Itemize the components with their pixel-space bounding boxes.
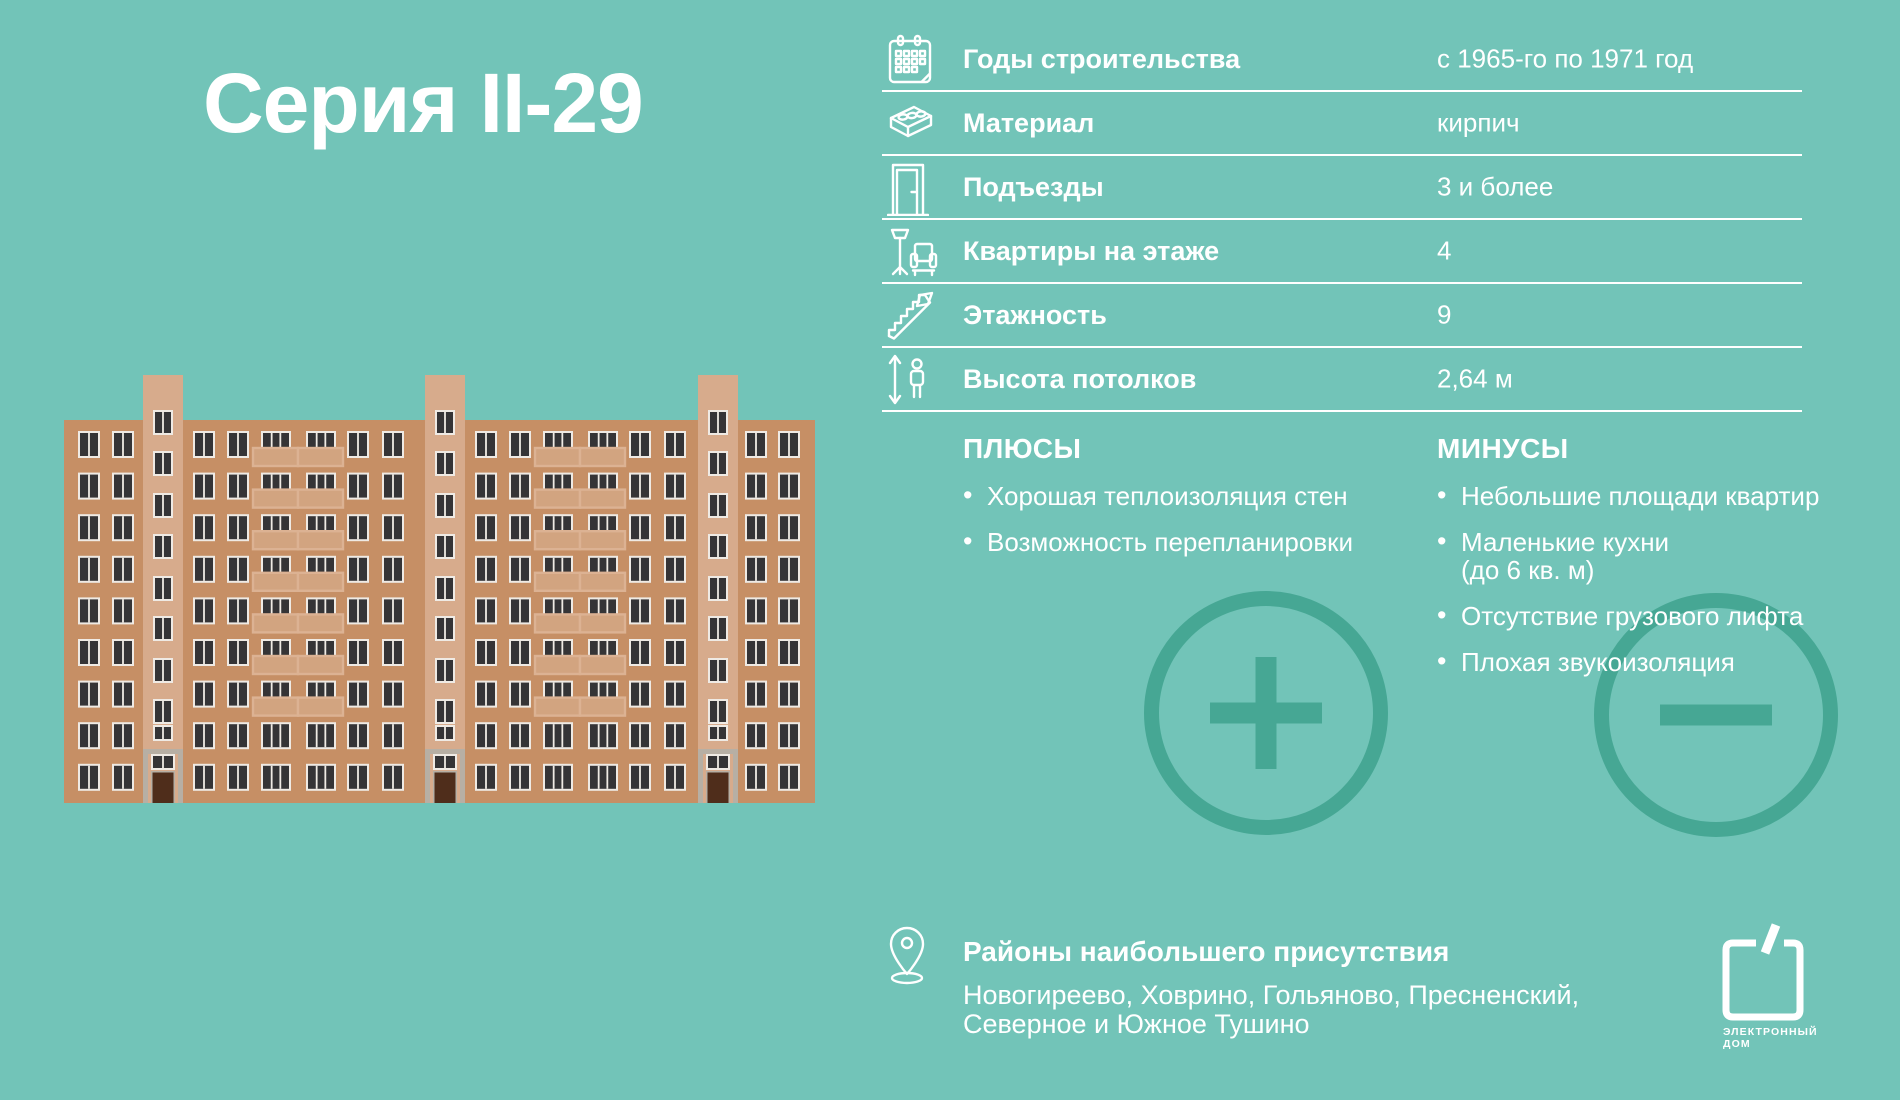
spec-label: Материал (963, 108, 1094, 139)
map-pin-icon (884, 925, 930, 987)
spec-value: кирпич (1437, 108, 1520, 139)
door-icon (882, 159, 963, 216)
spec-row-entrances: Подъезды 3 и более (882, 156, 1802, 220)
spec-value: 4 (1437, 236, 1451, 267)
spec-value: 9 (1437, 300, 1451, 331)
brick-icon (882, 104, 963, 142)
spec-row-ceiling: Высота потолков 2,64 м (882, 348, 1802, 412)
pros-list: Хорошая теплоизоляция стен Возможность п… (963, 482, 1393, 556)
stairs-icon (882, 291, 963, 340)
cons-heading: МИНУСЫ (1437, 433, 1857, 465)
districts-line: Новогиреево, Ховрино, Гольяново, Преснен… (963, 981, 1579, 1010)
calendar-icon (882, 34, 963, 85)
spec-value: 2,64 м (1437, 364, 1513, 395)
spec-label: Квартиры на этаже (963, 236, 1219, 267)
spec-label: Высота потолков (963, 364, 1196, 395)
logo-text: ЭЛЕКТРОННЫЙ ДОМ (1723, 1026, 1818, 1050)
pros-heading: ПЛЮСЫ (963, 433, 1393, 465)
page-title: Серия II-29 (203, 55, 643, 152)
spec-label: Подъезды (963, 172, 1104, 203)
spec-label: Этажность (963, 300, 1107, 331)
cons-item: Отсутствие грузового лифта (1437, 602, 1857, 630)
minus-icon (1660, 705, 1772, 726)
electronic-house-logo (1721, 922, 1805, 1022)
cons-section: МИНУСЫ Небольшие площади квартир Маленьк… (1437, 433, 1857, 694)
districts-section: Районы наибольшего присутствия Новогирее… (963, 936, 1579, 1039)
cons-list: Небольшие площади квартир Маленькие кухн… (1437, 482, 1857, 676)
pros-section: ПЛЮСЫ Хорошая теплоизоляция стен Возможн… (963, 433, 1393, 574)
height-icon (882, 351, 963, 408)
infographic-canvas: Серия II-29 Годы строительств (0, 0, 1900, 1100)
spec-value: с 1965-го по 1971 год (1437, 44, 1693, 75)
spec-row-floors: Этажность 9 (882, 284, 1802, 348)
districts-line: Северное и Южное Тушино (963, 1010, 1579, 1039)
building-illustration (64, 375, 815, 803)
spec-label: Годы строительства (963, 44, 1240, 75)
building-svg (64, 375, 815, 803)
cons-item: Маленькие кухни (до 6 кв. м) (1437, 528, 1857, 584)
plus-circle (1144, 591, 1388, 835)
pros-item: Возможность перепланировки (963, 528, 1393, 556)
spec-value: 3 и более (1437, 172, 1553, 203)
spec-row-years: Годы строительства с 1965-го по 1971 год (882, 28, 1802, 92)
pros-item: Хорошая теплоизоляция стен (963, 482, 1393, 510)
spec-table: Годы строительства с 1965-го по 1971 год… (882, 28, 1802, 412)
cons-item: Плохая звукоизоляция (1437, 648, 1857, 676)
cons-item: Небольшие площади квартир (1437, 482, 1857, 510)
spec-row-material: Материал кирпич (882, 92, 1802, 156)
spec-row-flats: Квартиры на этаже 4 (882, 220, 1802, 284)
districts-heading: Районы наибольшего присутствия (963, 936, 1579, 968)
furniture-icon (882, 225, 963, 277)
